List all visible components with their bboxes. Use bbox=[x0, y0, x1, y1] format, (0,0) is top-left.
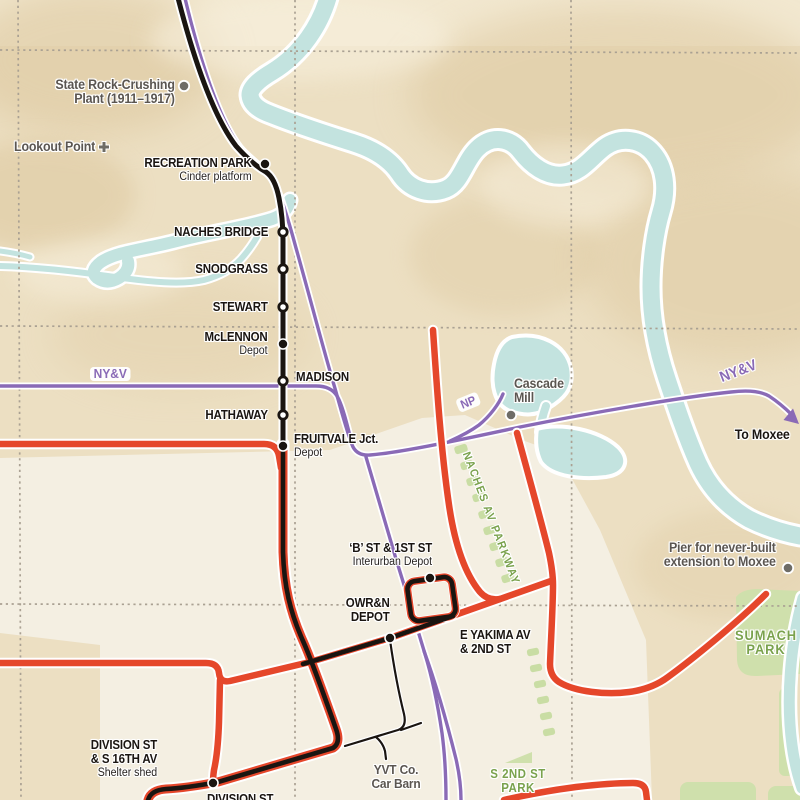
label-sumach-park-text: PARK bbox=[735, 642, 797, 656]
label-fruitvale-jct: FRUITVALE Jct.Depot bbox=[294, 432, 378, 460]
label-owrn-depot-text: OWR&N bbox=[346, 596, 390, 610]
label-naches-bridge: NACHES BRIDGE bbox=[174, 225, 268, 239]
map-graphic bbox=[0, 0, 800, 800]
label-e-yakima-2nd-text: & 2ND ST bbox=[460, 642, 530, 656]
label-yvt-car-barn: YVT Co.Car Barn bbox=[371, 763, 420, 791]
label-cascade-mill-text: Cascade bbox=[514, 377, 564, 391]
label-state-rock-crushing-plant: State Rock-CrushingPlant (1911–1917) bbox=[56, 78, 175, 106]
dot-cascade-mill bbox=[506, 410, 516, 420]
dot-rock-crushing-plant bbox=[179, 81, 189, 91]
label-state-rock-crushing-plant-text: State Rock-Crushing bbox=[56, 78, 175, 92]
label-division-16th-text: & S 16TH AV bbox=[91, 752, 157, 766]
map-canvas: State Rock-CrushingPlant (1911–1917)Look… bbox=[0, 0, 800, 800]
stop-fruitvale-jct bbox=[278, 441, 288, 451]
label-owrn-depot: OWR&NDEPOT bbox=[346, 596, 390, 624]
label-snodgrass-text: SNODGRASS bbox=[196, 262, 268, 276]
label-mclennon-text: Depot bbox=[205, 344, 268, 358]
stop-snodgrass bbox=[279, 265, 287, 273]
label-fruitvale-jct-text: FRUITVALE Jct. bbox=[294, 432, 378, 446]
stop-recreation-park bbox=[260, 159, 270, 169]
label-hathaway: HATHAWAY bbox=[206, 408, 268, 422]
label-mclennon-text: McLENNON bbox=[205, 330, 268, 344]
label-recreation-park-text: Cinder platform bbox=[145, 170, 252, 184]
label-b-st-1st-st-text: ‘B’ ST & 1ST ST bbox=[349, 541, 432, 555]
label-stewart: STEWART bbox=[213, 300, 268, 314]
label-sumach-park-text: SUMACH bbox=[735, 628, 797, 642]
label-naches-bridge-text: NACHES BRIDGE bbox=[174, 225, 268, 239]
stop-hathaway bbox=[279, 411, 287, 419]
label-nyv-west-text: NY&V bbox=[90, 367, 131, 381]
label-lookout-point: Lookout Point bbox=[14, 140, 95, 154]
dot-pier bbox=[783, 563, 793, 573]
label-pier-moxee-text: extension to Moxee bbox=[664, 555, 776, 569]
label-s-2nd-st-park-text: S 2ND ST bbox=[490, 767, 545, 781]
stop-b-st-loop bbox=[425, 573, 435, 583]
label-division-16th: DIVISION ST& S 16TH AVShelter shed bbox=[91, 738, 157, 780]
label-state-rock-crushing-plant-text: Plant (1911–1917) bbox=[56, 92, 175, 106]
label-stewart-text: STEWART bbox=[213, 300, 268, 314]
label-cascade-mill: CascadeMill bbox=[514, 377, 564, 405]
label-fruitvale-jct-text: Depot bbox=[294, 446, 378, 460]
park-bottom-1 bbox=[680, 782, 756, 800]
label-division-16th-text: DIVISION ST bbox=[91, 738, 157, 752]
label-division-st: DIVISION ST bbox=[207, 792, 273, 800]
label-division-st-text: DIVISION ST bbox=[207, 792, 273, 800]
label-to-moxee-text: To Moxee bbox=[735, 428, 790, 442]
label-nyv-west: NY&V bbox=[90, 367, 131, 381]
label-sumach-park: SUMACHPARK bbox=[735, 628, 797, 656]
stop-mclennon bbox=[278, 339, 288, 349]
label-e-yakima-2nd-text: E YAKIMA AV bbox=[460, 628, 530, 642]
label-cascade-mill-text: Mill bbox=[514, 391, 564, 405]
label-hathaway-text: HATHAWAY bbox=[206, 408, 268, 422]
label-snodgrass: SNODGRASS bbox=[196, 262, 268, 276]
label-b-st-1st-st: ‘B’ ST & 1ST STInterurban Depot bbox=[349, 541, 432, 569]
label-owrn-depot-text: DEPOT bbox=[346, 610, 390, 624]
label-recreation-park: RECREATION PARKCinder platform bbox=[145, 156, 252, 184]
label-s-2nd-st-park: S 2ND STPARK bbox=[490, 767, 545, 795]
label-recreation-park-text: RECREATION PARK bbox=[145, 156, 252, 170]
label-pier-moxee-text: Pier for never-built bbox=[664, 541, 776, 555]
stop-naches-bridge bbox=[279, 228, 287, 236]
stop-madison bbox=[279, 377, 287, 385]
label-yvt-car-barn-text: YVT Co. bbox=[371, 763, 420, 777]
label-to-moxee: To Moxee bbox=[735, 428, 790, 442]
label-division-16th-text: Shelter shed bbox=[91, 766, 157, 780]
stop-stewart bbox=[279, 303, 287, 311]
label-madison-text: MADISON bbox=[296, 370, 349, 384]
label-pier-moxee: Pier for never-builtextension to Moxee bbox=[664, 541, 776, 569]
label-e-yakima-2nd: E YAKIMA AV& 2ND ST bbox=[460, 628, 530, 656]
label-lookout-point-text: Lookout Point bbox=[14, 140, 95, 154]
label-mclennon: McLENNONDepot bbox=[205, 330, 268, 358]
label-s-2nd-st-park-text: PARK bbox=[490, 781, 545, 795]
label-yvt-car-barn-text: Car Barn bbox=[371, 777, 420, 791]
label-madison: MADISON bbox=[296, 370, 349, 384]
stop-owrn-depot bbox=[385, 633, 395, 643]
label-b-st-1st-st-text: Interurban Depot bbox=[349, 555, 432, 569]
stop-division-16th bbox=[208, 778, 218, 788]
